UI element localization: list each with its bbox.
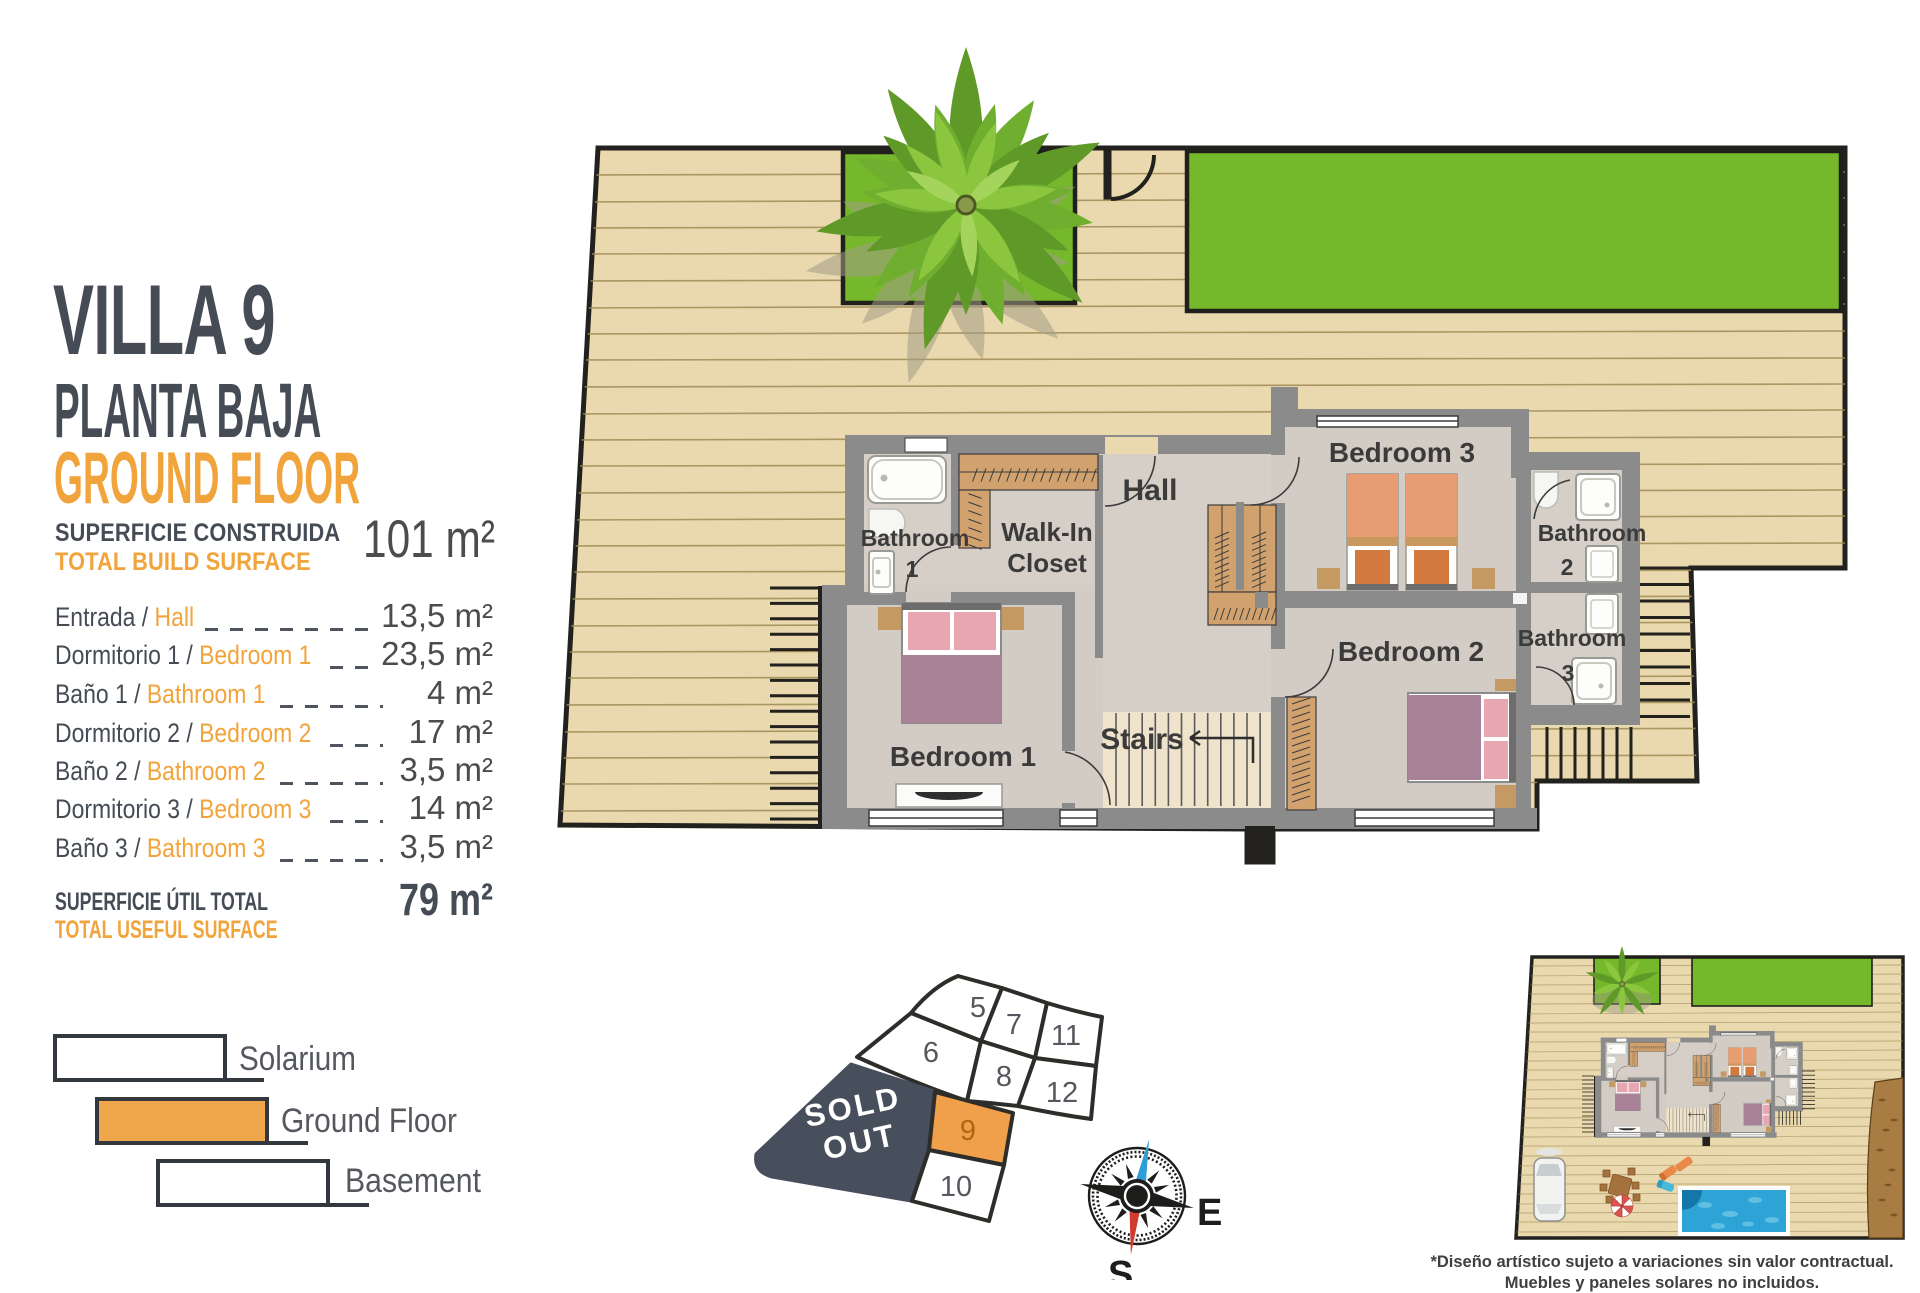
svg-text:8: 8	[996, 1061, 1012, 1093]
svg-text:Basement: Basement	[345, 1162, 481, 1200]
svg-text:E: E	[1197, 1192, 1222, 1234]
svg-text:3: 3	[1562, 660, 1575, 686]
svg-text:Hall: Hall	[1122, 474, 1177, 507]
svg-text:Solarium: Solarium	[239, 1040, 356, 1078]
svg-text:Ground Floor: Ground Floor	[281, 1102, 457, 1140]
svg-text:Bedroom 3: Bedroom 3	[1329, 437, 1475, 468]
svg-text:Bedroom 2: Bedroom 2	[1338, 636, 1484, 667]
svg-text:Walk-In: Walk-In	[1001, 517, 1092, 547]
svg-text:S: S	[1108, 1254, 1133, 1280]
svg-text:7: 7	[1006, 1009, 1022, 1041]
svg-text:Stairs: Stairs	[1100, 723, 1183, 756]
svg-text:Bedroom 1: Bedroom 1	[890, 741, 1036, 772]
svg-text:12: 12	[1046, 1077, 1078, 1109]
svg-text:2: 2	[1561, 554, 1574, 580]
svg-text:Bathroom: Bathroom	[1518, 625, 1627, 651]
svg-text:Bathroom: Bathroom	[1538, 520, 1647, 546]
svg-text:9: 9	[960, 1115, 976, 1147]
svg-text:5: 5	[970, 992, 986, 1024]
svg-text:10: 10	[940, 1171, 972, 1203]
svg-text:Closet: Closet	[1007, 548, 1087, 578]
svg-text:1: 1	[906, 556, 919, 582]
svg-text:6: 6	[923, 1037, 939, 1069]
svg-text:11: 11	[1051, 1020, 1081, 1052]
svg-text:Bathroom: Bathroom	[861, 525, 970, 551]
